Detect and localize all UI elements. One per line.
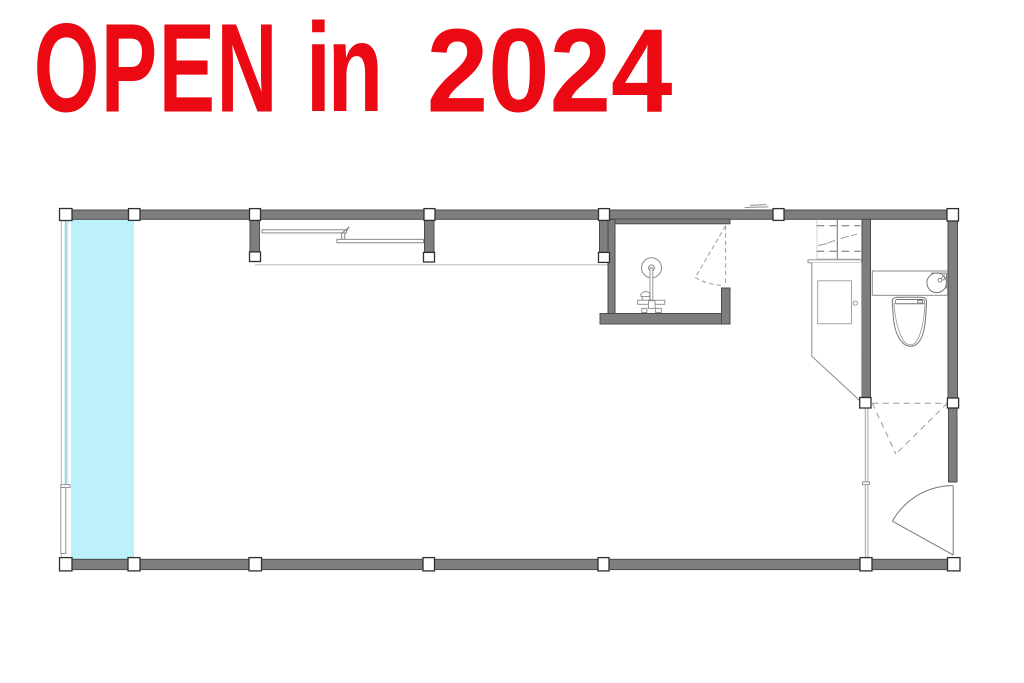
svg-text:in: in [306, 0, 380, 139]
svg-text:OPEN: OPEN [34, 0, 278, 138]
svg-text:2024: 2024 [427, 5, 673, 138]
